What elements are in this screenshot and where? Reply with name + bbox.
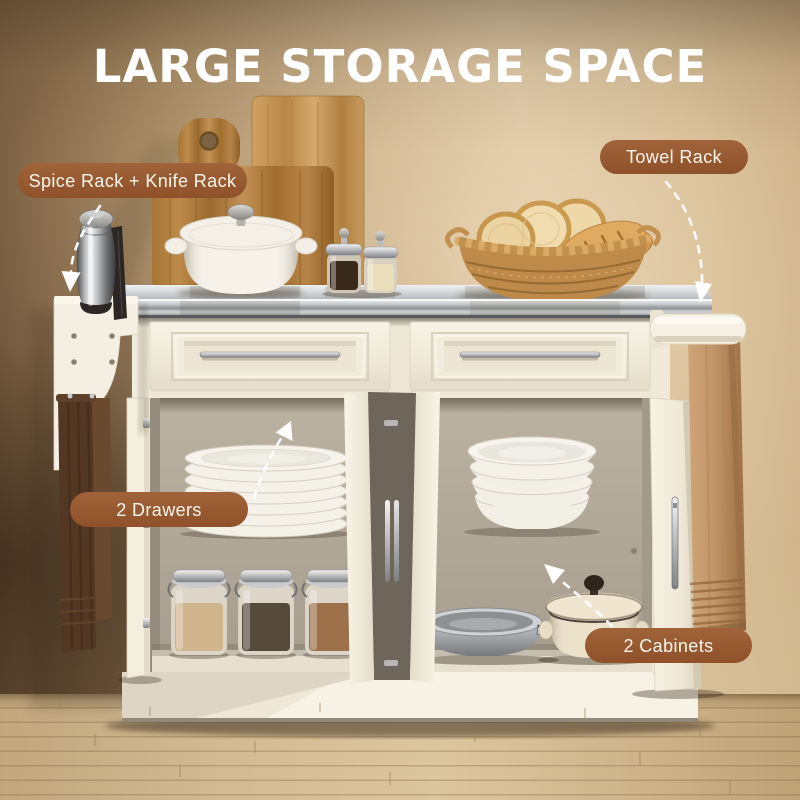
countertop-front-edge xyxy=(112,299,712,319)
door-handle xyxy=(672,497,678,589)
callout-spice-knife-rack-label: Spice Rack + Knife Rack xyxy=(29,172,237,190)
hook xyxy=(68,394,73,399)
callout-spice-knife-rack: Spice Rack + Knife Rack xyxy=(18,163,247,198)
door-hinge xyxy=(143,618,150,628)
towel-rack-arrow xyxy=(666,182,702,288)
grain-jar xyxy=(168,570,229,655)
pot-handle xyxy=(165,238,187,254)
pot-lid xyxy=(546,593,642,619)
callout-cabinets-label: 2 Cabinets xyxy=(623,637,713,655)
callout-towel-rack: Towel Rack xyxy=(600,140,748,174)
callout-drawers: 2 Drawers xyxy=(70,492,248,527)
drawer-right xyxy=(410,322,650,391)
callout-towel-rack-label: Towel Rack xyxy=(626,148,722,166)
door-hinge xyxy=(384,420,398,426)
door-handle xyxy=(385,500,390,582)
drawer-left xyxy=(150,322,390,391)
rack-hole xyxy=(109,359,115,365)
kitchen-cart xyxy=(105,318,724,737)
pot-handle xyxy=(295,238,317,254)
rack-hole xyxy=(71,333,77,339)
door-handle xyxy=(394,500,399,582)
storage-jars xyxy=(168,570,363,659)
hook xyxy=(90,394,95,399)
lid-knob xyxy=(228,205,254,220)
rack-hole xyxy=(71,359,77,365)
product-feature-image: LARGE STORAGE SPACE Spice Rack + Knife R… xyxy=(0,0,800,800)
pepper-storage-jar xyxy=(235,570,296,655)
drawer-handle xyxy=(200,352,340,358)
pepper-grinder-and-knife xyxy=(77,210,127,320)
pot-side-handle xyxy=(539,621,553,639)
pot-lid-knob xyxy=(584,575,604,591)
kitchen-cart-scene xyxy=(0,0,800,800)
drawer-handle xyxy=(460,352,600,358)
headline: LARGE STORAGE SPACE xyxy=(0,40,800,93)
callout-drawers-label: 2 Drawers xyxy=(116,501,202,519)
callout-cabinets: 2 Cabinets xyxy=(585,628,752,663)
door-hinge xyxy=(384,660,398,666)
rack-hole xyxy=(109,333,115,339)
board-hanging-hole xyxy=(201,133,218,150)
